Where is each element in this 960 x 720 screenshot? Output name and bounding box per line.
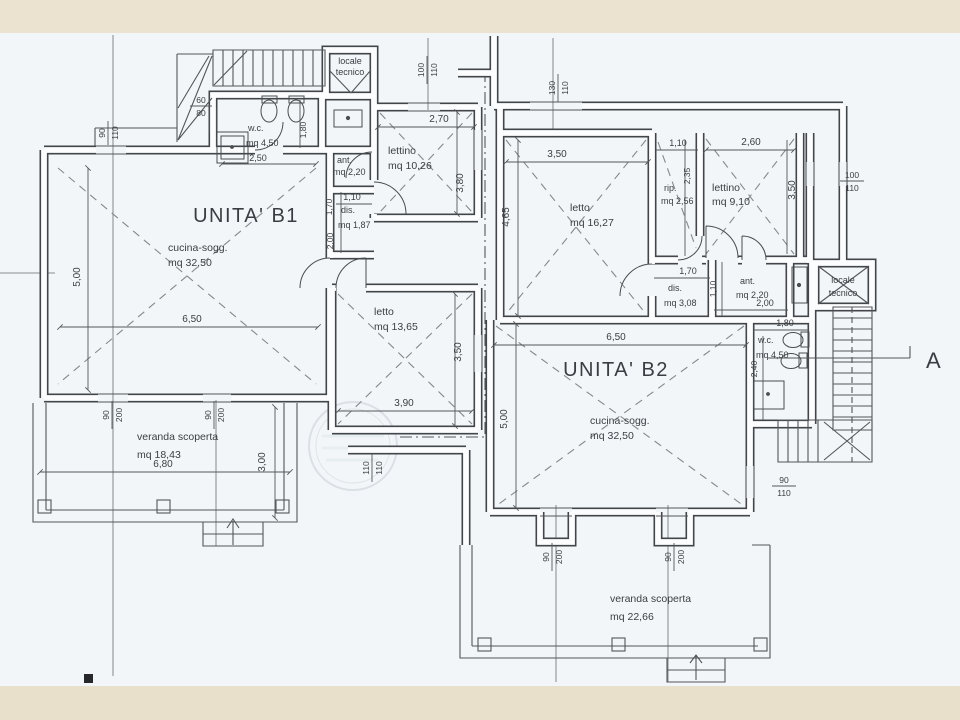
b1-ant-name: ant.: [337, 155, 352, 165]
b1-wc-height: 1,80: [298, 121, 308, 138]
b2-dis-area: mq 3,08: [664, 298, 697, 308]
b1-lettino-name: lettino: [388, 145, 416, 157]
b1-letto-height: 3,50: [453, 342, 464, 362]
b2-cucina-width: 6,50: [606, 332, 626, 343]
svg-text:110: 110: [361, 461, 371, 475]
svg-text:90: 90: [101, 410, 111, 420]
b2-wc-height: 2,40: [749, 360, 759, 377]
b2-locale-line1: locale: [831, 275, 855, 285]
b2-lettino-name: lettino: [712, 182, 740, 194]
svg-text:200: 200: [114, 408, 124, 422]
unit-b1-title: UNITA' B1: [193, 205, 299, 227]
b2-letto-width: 3,50: [547, 149, 567, 160]
b2-rip-name: rip.: [664, 183, 677, 193]
svg-text:90: 90: [663, 552, 673, 562]
floor-plan-drawing: A UNITA' B1 cucina-sogg. mq 32,50 6,50 5…: [0, 0, 960, 720]
b2-letto-area: mq 16,27: [570, 217, 614, 229]
b2-lettino-area: mq 9,10: [712, 196, 750, 208]
b2-veranda-name: veranda scoperta: [610, 593, 691, 605]
b1-cucina-area: mq 32,50: [168, 257, 212, 269]
b1-wc-width: 2,50: [249, 153, 267, 163]
b2-cucina-height: 5,00: [499, 409, 510, 429]
b2-dis-width: 1,70: [679, 266, 697, 276]
b1-wc-name: w.c.: [247, 123, 264, 133]
svg-text:200: 200: [554, 550, 564, 564]
svg-text:110: 110: [110, 126, 120, 140]
scanned-floor-plan-page: A UNITA' B1 cucina-sogg. mq 32,50 6,50 5…: [0, 0, 960, 720]
svg-text:110: 110: [777, 488, 791, 498]
b2-locale-line2: tecnico: [829, 288, 858, 298]
b2-letto-height: 4,65: [501, 207, 512, 227]
b1-letto-name: letto: [374, 306, 394, 318]
unit-b2-title: UNITA' B2: [563, 359, 669, 381]
b1-cucina-name: cucina-sogg.: [168, 242, 228, 254]
b1-letto-area: mq 13,65: [374, 321, 418, 333]
b2-wc-width: 1,80: [776, 318, 794, 328]
b2-ant-name: ant.: [740, 276, 755, 286]
scan-band-bottom: [0, 686, 960, 720]
b1-lettino-area: mq 10,26: [388, 160, 432, 172]
b2-lettino-width: 2,60: [741, 137, 761, 148]
svg-text:90: 90: [541, 552, 551, 562]
svg-text:90: 90: [203, 410, 213, 420]
axis-end-marker: [84, 674, 93, 683]
b2-rip-area: mq 2,56: [661, 196, 694, 206]
b1-locale-line2: tecnico: [336, 67, 365, 77]
b2-veranda-area: mq 22,66: [610, 611, 654, 623]
b2-dis-name: dis.: [668, 283, 682, 293]
b2-letto-name: letto: [570, 202, 590, 214]
b1-corridor-height: 2,00: [325, 232, 335, 249]
b1-letto-width: 3,90: [394, 398, 414, 409]
b1-veranda-width: 6,80: [153, 459, 173, 470]
b1-wc-area: mq 4,50: [246, 138, 279, 148]
svg-text:100: 100: [845, 170, 859, 180]
b2-cucina-name: cucina-sogg.: [590, 415, 650, 427]
b2-wc-area: mq 4,50: [756, 350, 789, 360]
svg-text:60: 60: [196, 95, 206, 105]
svg-text:90: 90: [779, 475, 789, 485]
b1-veranda-name: veranda scoperta: [137, 431, 218, 443]
b1-dis-width: 1,10: [343, 192, 361, 202]
b1-veranda-height: 3,00: [257, 452, 268, 472]
b1-lettino-height: 3,80: [455, 173, 466, 193]
svg-text:200: 200: [676, 550, 686, 564]
b1-dis-area: mq 1,87: [338, 220, 371, 230]
svg-text:80: 80: [196, 108, 206, 118]
b2-rip-height: 2,35: [682, 167, 692, 184]
section-letter: A: [926, 348, 941, 373]
b1-dim-height: 5,00: [72, 267, 83, 287]
b1-locale-line1: locale: [338, 56, 362, 66]
svg-text:130: 130: [547, 81, 557, 95]
svg-text:110: 110: [374, 461, 384, 475]
b2-rip-width: 1,10: [669, 138, 687, 148]
b2-wc-name: w.c.: [757, 335, 774, 345]
b2-ant-width: 2,00: [756, 298, 774, 308]
svg-text:100: 100: [416, 63, 426, 77]
svg-text:90: 90: [97, 128, 107, 138]
b2-lettino-height: 3,50: [787, 180, 798, 200]
b2-cucina-area: mq 32,50: [590, 430, 634, 442]
b2-ant-height: 1,10: [708, 280, 718, 297]
b1-dim-width: 6,50: [182, 314, 202, 325]
svg-text:110: 110: [845, 183, 859, 193]
svg-text:200: 200: [216, 408, 226, 422]
b1-ant-area: mq 2,20: [333, 167, 366, 177]
b1-dis-height: 1,70: [324, 198, 334, 215]
svg-text:110: 110: [560, 81, 570, 95]
b1-lettino-width: 2,70: [429, 114, 449, 125]
svg-text:110: 110: [429, 63, 439, 77]
b1-dis-name: dis.: [341, 205, 355, 215]
scan-band-top: [0, 0, 960, 33]
